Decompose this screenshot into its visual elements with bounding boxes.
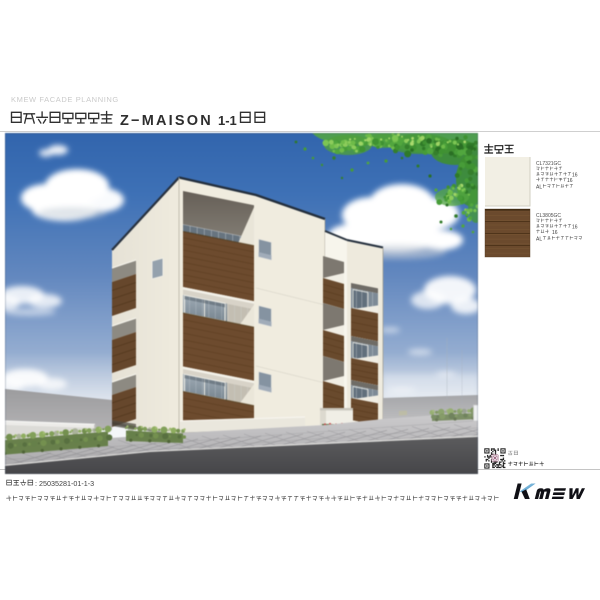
svg-text:16: 16 <box>567 178 573 184</box>
svg-text:CL3805GC: CL3805GC <box>536 213 561 219</box>
svg-text:AL: AL <box>536 237 542 243</box>
svg-text:16: 16 <box>552 230 558 236</box>
svg-text:: 25035281-01-1-3: : 25035281-01-1-3 <box>35 479 94 488</box>
svg-text:16: 16 <box>572 225 578 231</box>
svg-text:AL: AL <box>536 185 542 191</box>
svg-text:CL7321GC: CL7321GC <box>536 161 561 167</box>
svg-text:16: 16 <box>572 173 578 179</box>
svg-text:1-1: 1-1 <box>218 113 237 128</box>
svg-text:Z−MAISON: Z−MAISON <box>120 113 213 129</box>
